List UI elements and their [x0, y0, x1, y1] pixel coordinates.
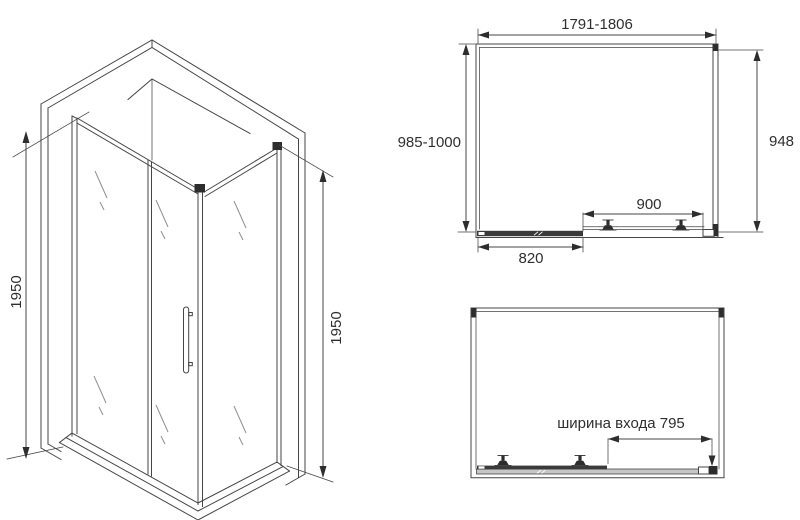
arrow-right-icon — [701, 436, 712, 443]
door-handle — [184, 307, 193, 373]
bottom-rail-assembly-open — [477, 456, 718, 475]
handle-stub-bottom — [189, 363, 193, 366]
dimension-side-panel: 948 — [719, 50, 794, 232]
dim-label-height-right: 1950 — [328, 311, 345, 344]
rail-end-bracket — [703, 230, 714, 237]
corner-bracket-front — [195, 184, 206, 193]
rail-end-bracket — [699, 467, 710, 474]
sliding-door-bar — [477, 466, 607, 470]
dim-label-height-left: 1950 — [8, 275, 25, 308]
arrow-right-icon — [705, 32, 716, 39]
dim-label-door-panel: 900 — [636, 196, 661, 213]
roller-icon — [600, 220, 616, 230]
bottom-track — [477, 469, 717, 474]
panel-end-notch — [479, 466, 485, 468]
open-door-plan-view: ширина входа 795 — [471, 308, 724, 478]
technical-drawing-svg: 1950 1950 — [0, 0, 800, 520]
drawing-canvas: 1950 1950 — [0, 0, 800, 520]
arrow-down-icon — [320, 466, 327, 478]
base-tray — [60, 433, 290, 520]
roller-icon — [572, 456, 588, 466]
arrow-down-icon — [709, 456, 716, 467]
fixed-panel-bar — [477, 231, 583, 236]
arrow-up-icon — [320, 170, 327, 182]
dim-label-side-panel: 948 — [769, 133, 794, 150]
dim-label-overall-depth: 985-1000 — [398, 134, 461, 151]
iso-view: 1950 1950 — [7, 40, 345, 520]
enclosure-outline — [476, 44, 723, 238]
arrow-right-icon — [692, 211, 703, 218]
dimension-fixed-panel: 820 — [478, 238, 583, 267]
arrow-left-icon — [478, 32, 489, 39]
roller-icon — [673, 220, 689, 230]
back-walls — [41, 40, 305, 485]
arrow-down-icon — [23, 447, 30, 459]
dimension-overall-depth: 985-1000 — [398, 44, 475, 232]
shower-cabin-frame — [72, 116, 282, 507]
arrow-left-icon — [478, 244, 489, 251]
panel-end-notch — [479, 232, 485, 235]
dim-label-overall-width: 1791-1806 — [561, 16, 633, 33]
arrow-down-icon — [754, 221, 761, 232]
bottom-rail-assembly — [477, 220, 718, 236]
glass-shine-marks — [94, 171, 246, 445]
handle-stub-top — [189, 313, 193, 316]
rail-end-block — [714, 230, 719, 237]
top-plan-view: 1791-1806 985-1000 948 900 — [398, 16, 794, 267]
arrow-left-icon — [583, 211, 594, 218]
arrow-up-icon — [754, 50, 761, 61]
dimension-door-panel: 900 — [583, 196, 703, 231]
dim-label-entrance-width: ширина входа 795 — [557, 415, 685, 432]
arrow-up-icon — [23, 131, 30, 143]
enclosure-outline-open — [471, 308, 724, 478]
rail-end-block — [709, 466, 718, 475]
arrow-right-icon — [572, 244, 583, 251]
roller-icon — [495, 456, 511, 466]
dimension-overall-width: 1791-1806 — [478, 16, 716, 43]
arrow-up-icon — [463, 44, 470, 55]
handle-bar — [184, 307, 189, 373]
arrow-down-icon — [463, 221, 470, 232]
dimension-height-right: 1950 — [279, 145, 345, 482]
dim-label-fixed-panel: 820 — [518, 250, 543, 267]
arrow-left-icon — [608, 436, 619, 443]
wall-profile-cap-top — [713, 44, 719, 51]
